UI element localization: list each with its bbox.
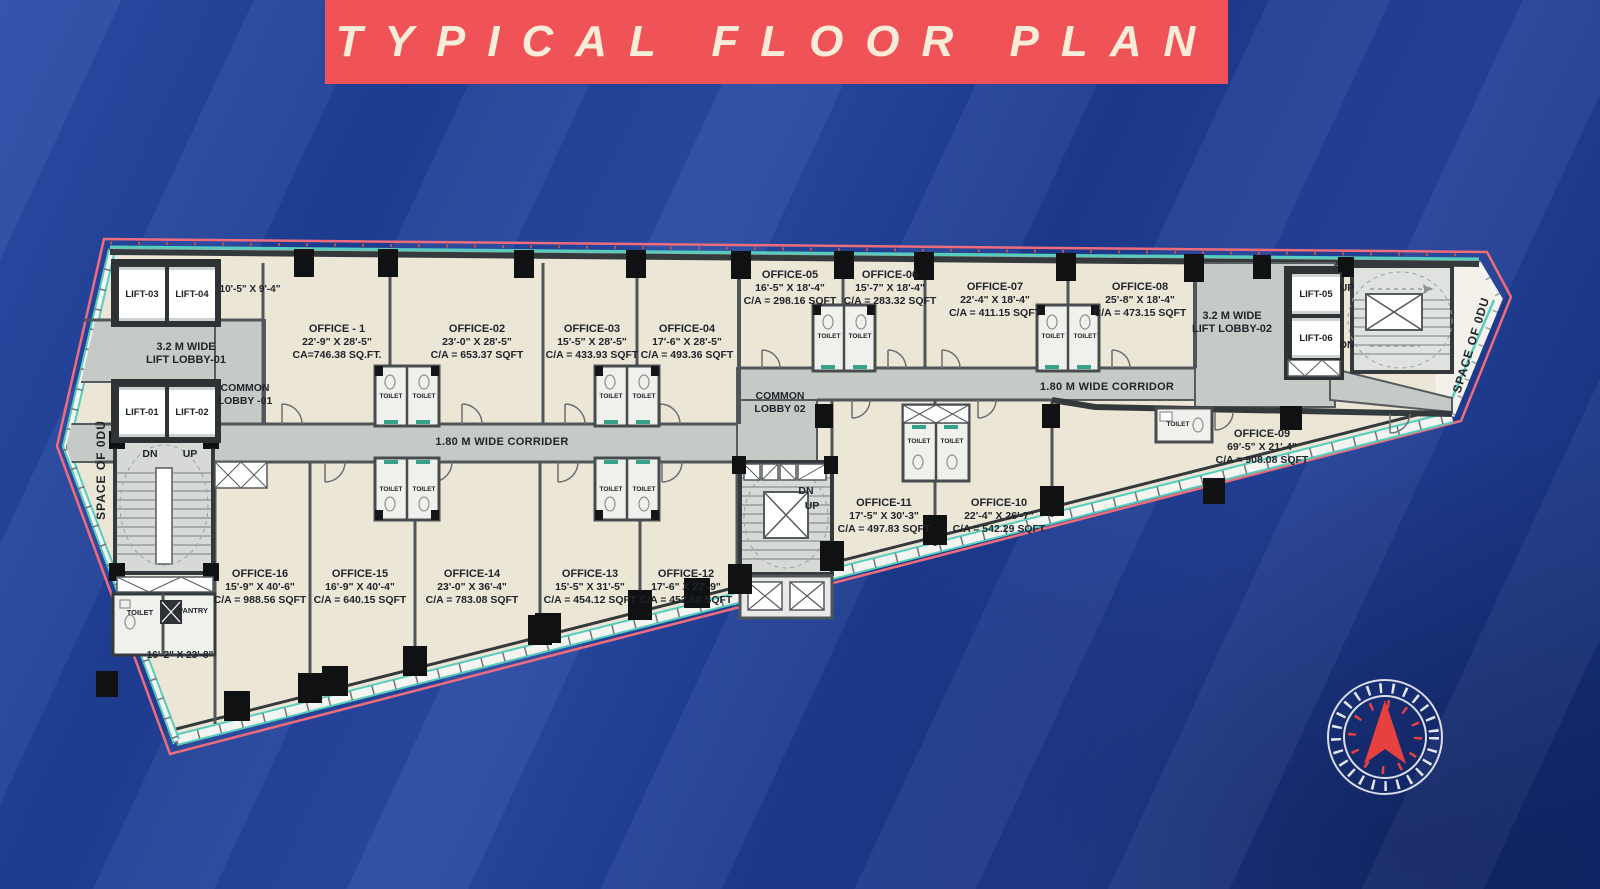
toilet-label: TOILET	[380, 393, 403, 400]
toilet-label: TOILET	[1042, 333, 1065, 340]
corridor-right-label: 1.80 M WIDE CORRIDOR	[1040, 381, 1174, 393]
office-04-label: OFFICE-0417'-6" X 28'-5"C/A = 493.36 SQF…	[641, 323, 734, 362]
stairs-middle-up: UP	[805, 500, 820, 512]
toilet-label: TOILET	[633, 486, 656, 493]
toilet-label: TOILET	[908, 438, 931, 445]
common-lobby-01-label: COMMONLOBBY -01	[218, 382, 273, 408]
page-background: TYPICAL FLOOR PLAN LIFT-03 LIFT-04 LIFT-…	[0, 0, 1600, 889]
toilet-pantry-block	[113, 594, 215, 655]
toilet-label: TOILET	[1074, 333, 1097, 340]
stairs-right-up: UP	[1340, 282, 1355, 294]
lift-lobby-02-label: 3.2 M WIDELIFT LOBBY-02	[1192, 310, 1272, 336]
office-14-label: OFFICE-1423'-0" X 36'-4"C/A = 783.08 SQF…	[426, 568, 519, 607]
toilet-label: TOILET	[941, 438, 964, 445]
office-03-label: OFFICE-0315'-5" X 28'-5"C/A = 433.93 SQF…	[546, 323, 639, 362]
north-arrow	[1364, 700, 1406, 764]
office-15-label: OFFICE-1516'-9" X 40'-4"C/A = 640.15 SQF…	[314, 568, 407, 607]
stairs-right-dn: DN	[1339, 339, 1354, 351]
floor-plan-drawing	[0, 0, 1600, 889]
lift-block-dimension: 10'-5" X 9'-4"	[220, 284, 281, 295]
bottom-left-dimension: 16'-2" X 23'-8"	[147, 650, 214, 661]
lift-lobby-01-label: 3.2 M WIDELIFT LOBBY-01	[146, 341, 226, 367]
title-banner: TYPICAL FLOOR PLAN	[325, 0, 1228, 84]
office-07-label: OFFICE-0722'-4" X 18'-4"C/A = 411.15 SQF…	[949, 281, 1041, 320]
lift-02: LIFT-02	[167, 385, 217, 439]
office-16-label: OFFICE-1615'-9" X 40'-6"C/A = 988.56 SQF…	[214, 568, 307, 607]
lift-03: LIFT-03	[117, 265, 167, 323]
toilet-label: TOILET	[849, 333, 872, 340]
lift-04: LIFT-04	[167, 265, 217, 323]
lift-01: LIFT-01	[117, 385, 167, 439]
office-08-label: OFFICE-0825'-8" X 18'-4"C/A = 473.15 SQF…	[1094, 281, 1187, 320]
office-13-label: OFFICE-1315'-5" X 31'-5"C/A = 454.12 SQF…	[544, 568, 637, 607]
page-title: TYPICAL FLOOR PLAN	[336, 17, 1218, 67]
stairs-right	[1348, 266, 1452, 372]
stairs-left-up: UP	[183, 448, 198, 460]
corridor-left-label: 1.80 M WIDE CORRIDER	[435, 436, 568, 448]
toilet-label: TOILET	[1167, 421, 1190, 428]
space-of-odu-left: SPACE OF 0DU	[94, 420, 108, 520]
toilet-label: TOILET	[633, 393, 656, 400]
lift-05: LIFT-05	[1290, 272, 1342, 316]
common-lobby-02-label: COMMONLOBBY 02	[754, 390, 805, 416]
office-05-label: OFFICE-0516'-5" X 18'-4"C/A = 298.16 SQF…	[744, 269, 837, 308]
stairs-middle-dn: DN	[798, 485, 813, 497]
stairs-left	[109, 431, 219, 581]
office-02-label: OFFICE-0223'-0" X 28'-5"C/A = 653.37 SQF…	[431, 323, 524, 362]
office-11-label: OFFICE-1117'-5" X 30'-3"C/A = 497.83 SQF…	[838, 497, 931, 536]
office-01-label: OFFICE - 122'-9" X 28'-5"CA=746.38 SQ.FT…	[293, 323, 382, 362]
toilet-label: TOILET	[380, 486, 403, 493]
office-09-label: OFFICE-0969'-5" X 21'-4"C/A = 908.08 SQF…	[1216, 428, 1309, 467]
compass	[1328, 680, 1442, 794]
stairs-left-dn: DN	[142, 448, 157, 460]
lift-06: LIFT-06	[1290, 316, 1342, 360]
office-12-label: OFFICE-1217'-6" X 27'-9"C/A = 452.60 SQF…	[640, 568, 733, 607]
office-10-label: OFFICE-1022'-4" X 26'-7"C/A = 542.29 SQF…	[953, 497, 1046, 536]
toilet-label: TOILET	[127, 608, 154, 617]
office-06-label: OFFICE-0615'-7" X 18'-4"C/A = 283.32 SQF…	[844, 269, 937, 308]
toilet-label: TOILET	[818, 333, 841, 340]
pantry-label: PANTRY	[178, 606, 208, 615]
toilet-label: TOILET	[413, 486, 436, 493]
toilet-label: TOILET	[413, 393, 436, 400]
toilet-label: TOILET	[600, 393, 623, 400]
toilet-label: TOILET	[600, 486, 623, 493]
